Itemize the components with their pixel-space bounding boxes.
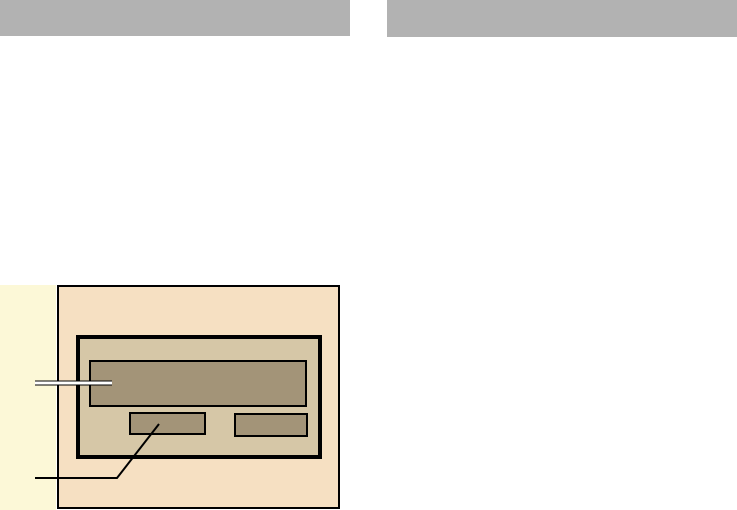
left-column-header-bar (0, 0, 350, 36)
right-column-header-bar (387, 0, 737, 37)
left-button (129, 412, 206, 435)
document-page (0, 0, 737, 510)
right-button (234, 413, 308, 437)
display-screen (89, 360, 307, 407)
dashboard-side-panel (0, 285, 56, 510)
